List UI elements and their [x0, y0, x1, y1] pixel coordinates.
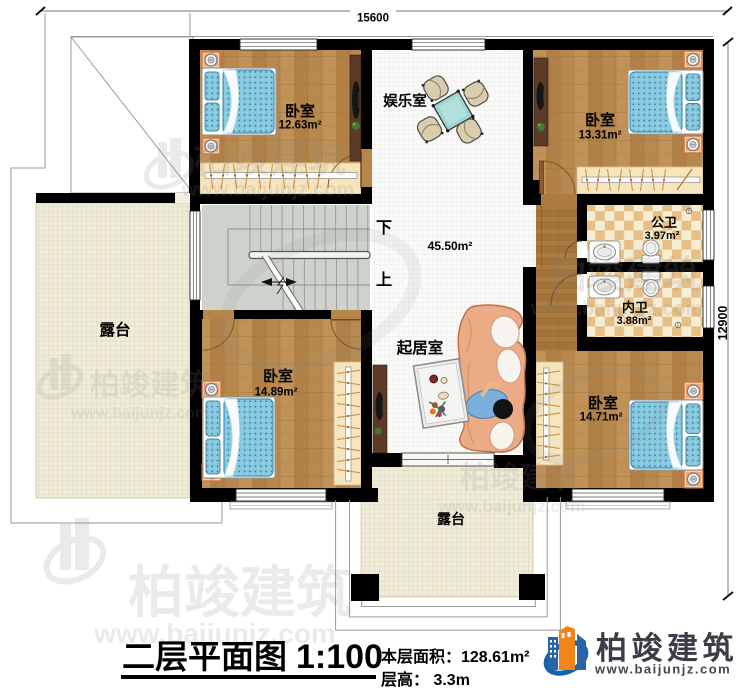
svg-text:卧室: 卧室: [588, 394, 618, 412]
svg-text:www.baijunjz.com: www.baijunjz.com: [438, 497, 586, 516]
svg-text:1:100: 1:100: [296, 638, 383, 676]
svg-text:13.31m²: 13.31m²: [579, 130, 622, 142]
svg-text:3.97m²: 3.97m²: [645, 230, 680, 242]
svg-text:柏竣建筑: 柏竣建筑: [128, 561, 352, 624]
svg-text:本层面积：128.61m²: 本层面积：128.61m²: [381, 647, 530, 666]
svg-text:卧室: 卧室: [585, 111, 615, 129]
svg-text:起居室: 起居室: [396, 338, 444, 357]
svg-text:娱乐室: 娱乐室: [383, 92, 427, 110]
svg-text:www.baijunjz.com: www.baijunjz.com: [181, 179, 355, 201]
svg-text:14.71m²: 14.71m²: [580, 412, 623, 424]
svg-text:www.baijunjz.com: www.baijunjz.com: [594, 662, 731, 677]
svg-text:柏竣建筑: 柏竣建筑: [90, 368, 210, 402]
svg-text:14.89m²: 14.89m²: [255, 387, 298, 399]
svg-text:15600: 15600: [357, 13, 389, 25]
svg-text:柏竣建筑: 柏竣建筑: [460, 461, 580, 495]
svg-text:www.baijunjz.com: www.baijunjz.com: [70, 405, 209, 422]
svg-text:层高： 3.3m: 层高： 3.3m: [381, 670, 470, 689]
svg-text:柏竣建筑: 柏竣建筑: [194, 139, 346, 181]
svg-text:卧室: 卧室: [285, 102, 315, 120]
svg-text:公卫: 公卫: [651, 215, 677, 230]
svg-text:www.baijunjz.com: www.baijunjz.com: [530, 298, 704, 320]
svg-text:12.63m²: 12.63m²: [279, 120, 322, 132]
svg-text:12900: 12900: [716, 306, 730, 341]
svg-text:45.50m²: 45.50m²: [428, 239, 473, 253]
svg-text:二层平面图: 二层平面图: [122, 638, 287, 675]
svg-text:上: 上: [376, 271, 392, 289]
svg-text:柏竣建筑: 柏竣建筑: [549, 255, 701, 297]
svg-text:露台: 露台: [99, 320, 130, 339]
